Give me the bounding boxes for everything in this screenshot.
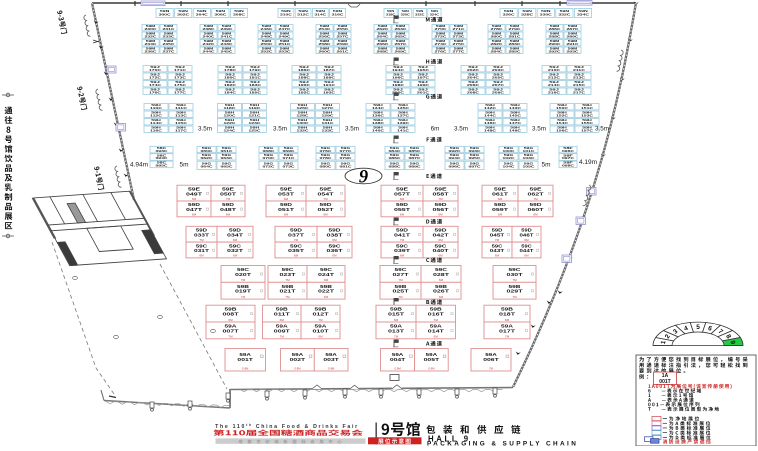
svg-text:0.9M: 0.9M: [294, 367, 301, 371]
svg-text:071C: 071C: [283, 156, 296, 160]
svg-text:092C: 092C: [449, 149, 462, 153]
svg-text:255C: 255C: [337, 27, 350, 31]
svg-text:088C: 088C: [389, 165, 402, 169]
svg-text:084C: 084C: [389, 149, 402, 153]
svg-text:6M: 6M: [284, 213, 289, 217]
svg-text:7M: 7M: [323, 197, 328, 201]
svg-text:302C: 302C: [177, 12, 190, 16]
svg-text:259C: 259C: [337, 42, 350, 46]
svg-text:234C: 234C: [145, 42, 158, 46]
svg-text:215C: 215C: [573, 83, 586, 87]
svg-text:182C: 182C: [224, 83, 237, 87]
svg-text:7M: 7M: [512, 278, 517, 282]
svg-text:094C: 094C: [449, 156, 462, 160]
svg-text:289C: 289C: [567, 35, 580, 39]
svg-text:010T: 010T: [313, 328, 329, 334]
svg-text:196C: 196C: [392, 76, 405, 80]
svg-text:7M: 7M: [495, 238, 500, 242]
svg-text:213C: 213C: [573, 76, 586, 80]
svg-text:177C: 177C: [174, 91, 187, 95]
svg-text:093C: 093C: [156, 149, 169, 153]
svg-text:174C: 174C: [149, 83, 162, 87]
svg-text:312C: 312C: [297, 12, 310, 16]
svg-text:6M: 6M: [438, 254, 443, 258]
svg-text:198C: 198C: [392, 83, 405, 87]
svg-text:257C: 257C: [337, 35, 350, 39]
svg-text:130C: 130C: [297, 121, 310, 125]
svg-text:003T: 003T: [323, 357, 339, 363]
svg-text:271C: 271C: [453, 27, 466, 31]
svg-text:095C: 095C: [469, 156, 482, 160]
svg-text:065C: 065C: [221, 165, 234, 169]
svg-text:6M: 6M: [438, 213, 443, 217]
svg-text:264C: 264C: [377, 35, 390, 39]
svg-text:322C: 322C: [415, 12, 425, 16]
svg-text:272C: 272C: [435, 35, 448, 39]
svg-text:123C: 123C: [249, 121, 262, 125]
svg-text:7M: 7M: [226, 197, 231, 201]
svg-text:4.19m: 4.19m: [579, 159, 597, 166]
svg-text:146C: 146C: [484, 121, 497, 125]
svg-text:6M: 6M: [318, 335, 323, 339]
svg-text:144C: 144C: [484, 114, 497, 118]
svg-text:5m: 5m: [179, 162, 188, 169]
svg-text:6M: 6M: [524, 254, 529, 258]
svg-text:59A: 59A: [485, 352, 497, 358]
svg-text:267C: 267C: [395, 42, 408, 46]
svg-text:308C: 308C: [233, 12, 246, 16]
svg-text:093C: 093C: [469, 149, 482, 153]
svg-text:7M: 7M: [434, 318, 439, 322]
svg-text:005T: 005T: [424, 357, 440, 363]
svg-text:171C: 171C: [174, 68, 187, 72]
svg-text:001T: 001T: [237, 357, 253, 363]
svg-text:248C: 248C: [261, 35, 274, 39]
svg-text:6m: 6m: [431, 126, 440, 133]
svg-text:6M: 6M: [294, 254, 299, 258]
svg-text:7M: 7M: [489, 367, 494, 371]
svg-text:288C: 288C: [549, 35, 562, 39]
svg-text:4.94m: 4.94m: [130, 162, 148, 169]
svg-text:59A: 59A: [426, 352, 438, 358]
svg-text:266C: 266C: [377, 42, 390, 46]
svg-text:214C: 214C: [548, 83, 561, 87]
svg-text:7M: 7M: [199, 238, 204, 242]
svg-text:7M: 7M: [398, 278, 403, 282]
svg-text:203C: 203C: [492, 68, 505, 72]
svg-text:180C: 180C: [224, 76, 237, 80]
svg-text:154C: 154C: [556, 121, 569, 125]
svg-text:105C: 105C: [523, 165, 536, 169]
svg-text:025T: 025T: [393, 289, 409, 295]
svg-text:256C: 256C: [319, 35, 332, 39]
svg-text:100C: 100C: [503, 149, 516, 153]
svg-text:027T: 027T: [393, 272, 409, 278]
svg-text:102C: 102C: [503, 156, 516, 160]
svg-text:6M: 6M: [192, 213, 197, 217]
svg-text:021T: 021T: [280, 289, 296, 295]
svg-text:330C: 330C: [540, 12, 553, 16]
svg-text:261C: 261C: [337, 50, 350, 54]
svg-text:024T: 024T: [318, 272, 334, 278]
svg-text:254C: 254C: [319, 27, 332, 31]
svg-text:098C: 098C: [562, 164, 575, 168]
svg-text:6M: 6M: [233, 238, 238, 242]
svg-text:6M: 6M: [228, 318, 233, 322]
svg-text:141C: 141C: [397, 129, 410, 133]
svg-text:6M: 6M: [438, 238, 443, 242]
svg-text:7M: 7M: [318, 318, 323, 322]
svg-text:185C: 185C: [249, 91, 262, 95]
svg-text:080C: 080C: [320, 165, 333, 169]
svg-text:002T: 002T: [290, 357, 306, 363]
svg-text:204C: 204C: [467, 76, 480, 80]
svg-text:3.5m: 3.5m: [273, 126, 287, 133]
svg-text:181C: 181C: [249, 76, 262, 80]
svg-text:081C: 081C: [340, 165, 353, 169]
svg-text:7M: 7M: [398, 295, 403, 299]
svg-text:6M: 6M: [199, 254, 204, 258]
svg-text:249C: 249C: [279, 35, 292, 39]
svg-text:018T: 018T: [499, 312, 515, 318]
svg-text:015T: 015T: [388, 312, 404, 318]
svg-text:246C: 246C: [261, 27, 274, 31]
svg-text:285C: 285C: [509, 50, 522, 54]
svg-text:6M: 6M: [434, 335, 439, 339]
svg-text:7M: 7M: [241, 295, 246, 299]
svg-text:124C: 124C: [224, 129, 237, 133]
svg-text:0.9M: 0.9M: [328, 367, 335, 371]
svg-text:7M: 7M: [533, 197, 538, 201]
svg-text:284C: 284C: [491, 50, 504, 54]
svg-text:287C: 287C: [567, 27, 580, 31]
svg-text:6M: 6M: [498, 197, 503, 201]
svg-text:060C: 060C: [201, 149, 214, 153]
svg-text:6M: 6M: [332, 254, 337, 258]
svg-text:3.5m: 3.5m: [345, 126, 359, 133]
svg-text:59A: 59A: [292, 352, 304, 358]
svg-text:217C: 217C: [573, 91, 586, 95]
svg-text:245C: 245C: [221, 50, 234, 54]
svg-text:209C: 209C: [492, 91, 505, 95]
svg-text:118C: 118C: [224, 106, 237, 110]
svg-text:094C: 094C: [156, 156, 169, 160]
svg-text:188C: 188C: [298, 76, 311, 80]
svg-text:149C: 149C: [509, 129, 522, 133]
svg-text:6M: 6M: [400, 254, 405, 258]
svg-text:6M: 6M: [280, 318, 285, 322]
svg-text:016T: 016T: [428, 312, 444, 318]
svg-text:116C: 116C: [150, 129, 163, 133]
svg-text:233C: 233C: [163, 35, 176, 39]
svg-text:0.9M: 0.9M: [242, 367, 249, 371]
svg-text:282C: 282C: [491, 42, 504, 46]
svg-text:179C: 179C: [249, 68, 262, 72]
svg-text:300C: 300C: [159, 12, 172, 16]
svg-text:186C: 186C: [298, 68, 311, 72]
svg-text:135C: 135C: [397, 106, 410, 110]
svg-text:152C: 152C: [556, 114, 569, 118]
svg-text:072C: 072C: [263, 165, 276, 169]
svg-text:243C: 243C: [221, 42, 234, 46]
svg-text:324C: 324C: [430, 12, 440, 16]
svg-text:023T: 023T: [280, 272, 296, 278]
svg-text:0.9M: 0.9M: [394, 367, 401, 371]
svg-text:133C: 133C: [322, 129, 335, 133]
svg-text:013T: 013T: [388, 328, 404, 334]
svg-text:6M: 6M: [324, 295, 329, 299]
svg-text:210C: 210C: [548, 68, 561, 72]
svg-text:175C: 175C: [174, 83, 187, 87]
svg-text:235C: 235C: [163, 42, 176, 46]
svg-text:073C: 073C: [283, 165, 296, 169]
svg-text:278C: 278C: [491, 27, 504, 31]
svg-text:286C: 286C: [549, 27, 562, 31]
svg-text:178C: 178C: [224, 68, 237, 72]
svg-text:127C: 127C: [322, 106, 335, 110]
svg-text:022T: 022T: [318, 289, 334, 295]
svg-text:078C: 078C: [320, 156, 333, 160]
svg-text:187C: 187C: [323, 68, 336, 72]
svg-text:7M: 7M: [285, 278, 290, 282]
svg-text:070C: 070C: [263, 156, 276, 160]
svg-text:132C: 132C: [297, 129, 310, 133]
svg-text:110C: 110C: [150, 106, 163, 110]
svg-text:6M: 6M: [324, 278, 329, 282]
svg-text:59A: 59A: [325, 352, 337, 358]
svg-text:3.5m: 3.5m: [454, 126, 468, 133]
svg-text:001T: 001T: [659, 379, 670, 385]
svg-text:231C: 231C: [163, 27, 176, 31]
svg-text:153C: 153C: [581, 114, 594, 118]
svg-text:314C: 314C: [314, 12, 327, 16]
svg-text:026T: 026T: [433, 289, 449, 295]
svg-text:096C: 096C: [449, 165, 462, 169]
svg-text:061C: 061C: [221, 149, 234, 153]
svg-text:128C: 128C: [297, 114, 310, 118]
svg-text:121C: 121C: [249, 114, 262, 118]
svg-text:117C: 117C: [175, 129, 188, 133]
svg-text:011T: 011T: [274, 312, 290, 318]
svg-text:004T: 004T: [390, 357, 406, 363]
svg-text:029T: 029T: [507, 289, 523, 295]
svg-text:244C: 244C: [203, 50, 216, 54]
svg-text:6M: 6M: [533, 213, 538, 217]
svg-text:6M: 6M: [505, 318, 510, 322]
svg-text:334C: 334C: [577, 12, 590, 16]
svg-text:195C: 195C: [417, 68, 430, 72]
svg-text:241C: 241C: [221, 35, 234, 39]
svg-text:079C: 079C: [340, 156, 353, 160]
svg-text:251C: 251C: [279, 42, 292, 46]
svg-text:279C: 279C: [509, 27, 522, 31]
svg-text:208C: 208C: [467, 91, 480, 95]
svg-text:017T: 017T: [499, 328, 515, 334]
svg-text:139C: 139C: [397, 121, 410, 125]
svg-text:6M: 6M: [233, 254, 238, 258]
svg-text:270C: 270C: [435, 27, 448, 31]
svg-text:7M: 7M: [294, 238, 299, 242]
svg-text:019T: 019T: [235, 289, 251, 295]
svg-text:283C: 283C: [509, 42, 522, 46]
svg-text:6M: 6M: [439, 278, 444, 282]
svg-text:5: 5: [696, 324, 700, 331]
svg-text:207C: 207C: [492, 83, 505, 87]
svg-text:238C: 238C: [203, 27, 216, 31]
svg-text:122C: 122C: [224, 121, 237, 125]
svg-text:069C: 069C: [283, 149, 296, 153]
svg-text:077C: 077C: [340, 149, 353, 153]
svg-text:280C: 280C: [491, 35, 504, 39]
svg-text:6M: 6M: [394, 318, 399, 322]
svg-text:085C: 085C: [409, 149, 422, 153]
svg-text:274C: 274C: [435, 42, 448, 46]
svg-text:126C: 126C: [297, 106, 310, 110]
svg-text:095C: 095C: [156, 164, 169, 168]
svg-text:328C: 328C: [521, 12, 534, 16]
svg-text:097C: 097C: [562, 156, 575, 160]
svg-text:59A: 59A: [392, 352, 404, 358]
svg-text:6M: 6M: [323, 213, 328, 217]
svg-text:6M: 6M: [284, 197, 289, 201]
svg-text:097C: 097C: [469, 165, 482, 169]
svg-text:6M: 6M: [498, 213, 503, 217]
svg-text:205C: 205C: [492, 76, 505, 80]
svg-text:112C: 112C: [150, 114, 163, 118]
svg-text:191C: 191C: [323, 83, 336, 87]
svg-text:59A: 59A: [239, 352, 251, 358]
svg-text:6M: 6M: [226, 213, 231, 217]
svg-text:030T: 030T: [507, 272, 523, 278]
svg-text:020T: 020T: [235, 272, 251, 278]
svg-text:157C: 157C: [581, 129, 594, 133]
svg-text:237C: 237C: [163, 50, 176, 54]
svg-text:240C: 240C: [203, 35, 216, 39]
svg-text:212C: 212C: [548, 76, 561, 80]
svg-text:275C: 275C: [453, 42, 466, 46]
svg-text:3.5m: 3.5m: [532, 126, 546, 133]
svg-text:216C: 216C: [548, 91, 561, 95]
svg-text:096C: 096C: [562, 149, 575, 153]
svg-text:202C: 202C: [467, 68, 480, 72]
svg-text:138C: 138C: [372, 121, 385, 125]
svg-text:211C: 211C: [573, 68, 586, 72]
svg-text:304C: 304C: [196, 12, 209, 16]
svg-text:014T: 014T: [428, 328, 444, 334]
svg-text:068C: 068C: [263, 149, 276, 153]
svg-text:7M: 7M: [280, 335, 285, 339]
svg-text:194C: 194C: [392, 68, 405, 72]
svg-text:281C: 281C: [509, 35, 522, 39]
svg-text:103C: 103C: [523, 156, 536, 160]
svg-text:012T: 012T: [313, 312, 329, 318]
svg-text:273C: 273C: [453, 35, 466, 39]
svg-text:089C: 089C: [409, 165, 422, 169]
svg-text:7M: 7M: [512, 295, 517, 299]
svg-text:192C: 192C: [298, 91, 311, 95]
svg-text:173C: 173C: [174, 76, 187, 80]
svg-text:119C: 119C: [249, 106, 262, 110]
svg-text:009T: 009T: [274, 328, 290, 334]
svg-text:277C: 277C: [453, 50, 466, 54]
svg-text:0.9M: 0.9M: [428, 367, 435, 371]
svg-text:007T: 007T: [223, 328, 239, 334]
svg-text:148C: 148C: [484, 129, 497, 133]
svg-text:6M: 6M: [192, 197, 197, 201]
svg-text:151C: 151C: [581, 106, 594, 110]
svg-text:306C: 306C: [214, 12, 227, 16]
svg-text:143C: 143C: [509, 106, 522, 110]
svg-text:172C: 172C: [149, 76, 162, 80]
svg-text:276C: 276C: [435, 50, 448, 54]
svg-text:5m: 5m: [541, 162, 550, 169]
svg-text:6M: 6M: [400, 213, 405, 217]
svg-text:262C: 262C: [377, 27, 390, 31]
svg-text:230C: 230C: [145, 27, 158, 31]
svg-text:250C: 250C: [261, 42, 274, 46]
svg-text:252C: 252C: [261, 50, 274, 54]
svg-text:201C: 201C: [417, 91, 430, 95]
svg-text:184C: 184C: [224, 91, 237, 95]
svg-text:239C: 239C: [221, 27, 234, 31]
svg-text:008T: 008T: [223, 312, 239, 318]
svg-text:147C: 147C: [509, 121, 522, 125]
svg-text:290C: 290C: [549, 42, 562, 46]
svg-text:197C: 197C: [417, 76, 430, 80]
svg-text:134C: 134C: [372, 106, 385, 110]
svg-text:101C: 101C: [523, 149, 536, 153]
svg-text:064C: 064C: [201, 165, 214, 169]
svg-text:292C: 292C: [549, 50, 562, 54]
svg-text:6M: 6M: [495, 254, 500, 258]
svg-text:170C: 170C: [149, 68, 162, 72]
svg-text:6M: 6M: [524, 238, 529, 242]
svg-text:320C: 320C: [401, 12, 411, 16]
svg-text:3.5m: 3.5m: [595, 126, 609, 133]
svg-text:063C: 063C: [221, 156, 234, 160]
svg-text:189C: 189C: [323, 76, 336, 80]
svg-text:155C: 155C: [581, 121, 594, 125]
svg-text:206C: 206C: [467, 83, 480, 87]
svg-text:183C: 183C: [249, 83, 262, 87]
svg-text:140C: 140C: [372, 129, 385, 133]
svg-text:125C: 125C: [249, 129, 262, 133]
svg-text:269C: 269C: [395, 50, 408, 54]
svg-text:9: 9: [359, 168, 368, 188]
svg-text:076C: 076C: [320, 149, 333, 153]
svg-text:156C: 156C: [556, 129, 569, 133]
svg-text:PACKAGING & SUPPLY CHAIN: PACKAGING & SUPPLY CHAIN: [427, 441, 578, 446]
svg-text:176C: 176C: [149, 91, 162, 95]
svg-text:The 110th China Food & Drinks: The 110th China Food & Drinks Fair: [215, 423, 359, 430]
svg-text:332C: 332C: [558, 12, 571, 16]
svg-text:086C: 086C: [389, 156, 402, 160]
svg-text:7M: 7M: [438, 197, 443, 201]
svg-text:265C: 265C: [395, 35, 408, 39]
svg-text:291C: 291C: [567, 42, 580, 46]
svg-text:111C: 111C: [175, 106, 188, 110]
svg-text:247C: 247C: [279, 27, 292, 31]
svg-text:7M: 7M: [228, 335, 233, 339]
svg-text:310C: 310C: [280, 12, 293, 16]
svg-text:136C: 136C: [372, 114, 385, 118]
svg-text:6M: 6M: [439, 295, 444, 299]
svg-text:120C: 120C: [224, 114, 237, 118]
svg-text:326C: 326C: [503, 12, 516, 16]
svg-text:258C: 258C: [319, 42, 332, 46]
svg-text:253C: 253C: [279, 50, 292, 54]
svg-text:242C: 242C: [203, 42, 216, 46]
